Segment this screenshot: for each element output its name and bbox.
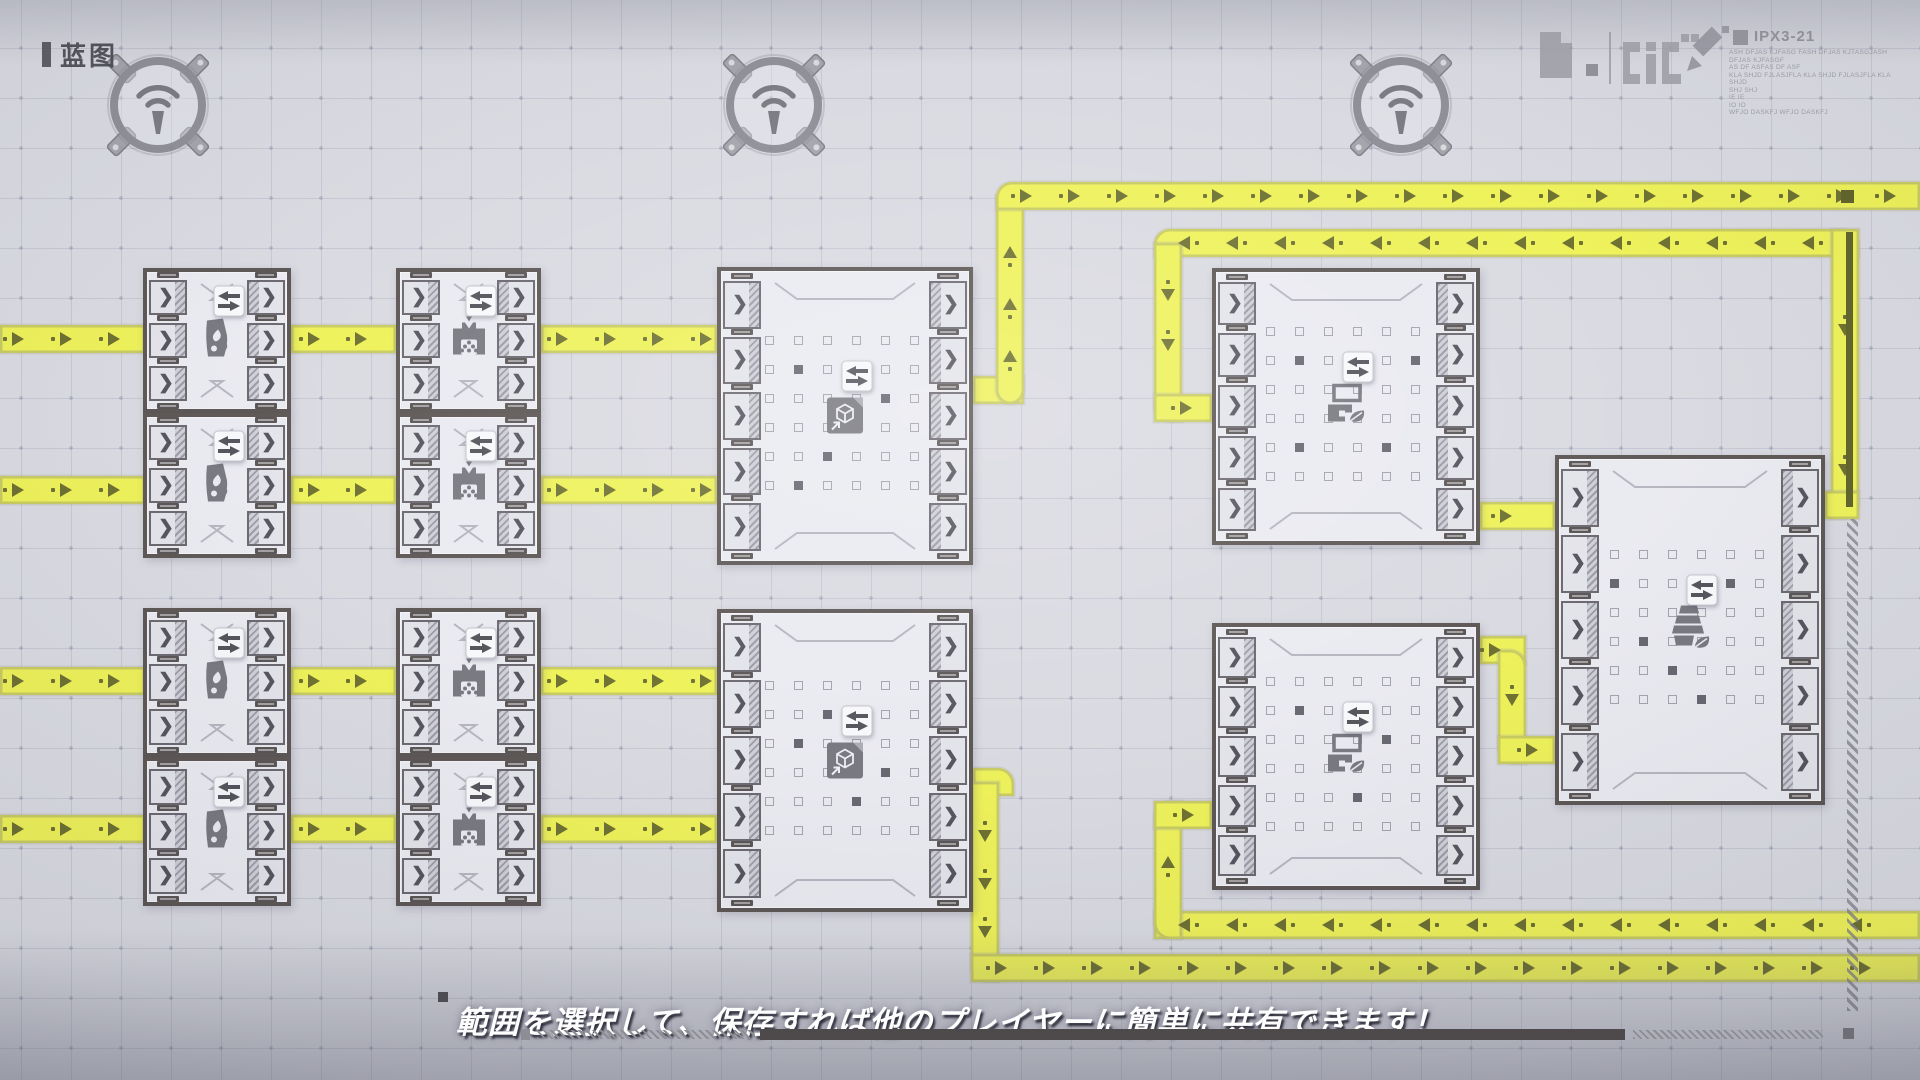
- calibration-dot: [910, 423, 919, 432]
- port-hatch-strip: [931, 625, 941, 670]
- belt-direction-arrow: [652, 822, 664, 836]
- furnace-icon: [194, 657, 240, 708]
- port-label-tag: [505, 850, 527, 856]
- calibration-dot: [1639, 695, 1648, 704]
- calibration-dot: [1266, 356, 1275, 365]
- calibration-dot: [1295, 764, 1304, 773]
- power-tower-icon[interactable]: [83, 30, 233, 180]
- belt-arrow-dot: [1008, 263, 1012, 267]
- io-port[interactable]: ❯: [247, 468, 285, 503]
- conveyor-belt-segment[interactable]: [291, 476, 396, 504]
- belt-arrow-dot: [643, 827, 647, 831]
- io-port[interactable]: ❯: [1561, 733, 1599, 791]
- io-port[interactable]: ❯: [1781, 667, 1819, 725]
- io-port[interactable]: ❯: [929, 793, 967, 842]
- io-port[interactable]: ❯: [1218, 637, 1256, 678]
- belt-arrow-dot: [691, 337, 695, 341]
- port-chevron-icon: ❯: [261, 821, 277, 840]
- sector-info-line: IE IE: [1729, 94, 1909, 102]
- belt-arrow-dot: [3, 679, 7, 683]
- io-port[interactable]: ❯: [723, 623, 761, 672]
- io-port[interactable]: ❯: [149, 468, 187, 503]
- belt-direction-arrow: [652, 674, 664, 688]
- building-leafmachine[interactable]: ❯❯❯❯❯❯❯❯❯❯: [1212, 623, 1480, 890]
- io-port[interactable]: ❯: [929, 503, 967, 551]
- calibration-dot: [1639, 666, 1648, 675]
- belt-direction-arrow: [1562, 918, 1574, 932]
- io-port[interactable]: ❯: [402, 620, 440, 656]
- port-label-tag: [410, 503, 432, 509]
- io-port[interactable]: ❯: [149, 323, 187, 358]
- port-hatch-strip: [175, 368, 185, 399]
- bottom-deco-square: [1843, 1028, 1854, 1039]
- io-port[interactable]: ❯: [1218, 436, 1256, 479]
- calibration-dot: [1411, 706, 1420, 715]
- belt-arrow-dot: [1754, 966, 1758, 970]
- port-hatch-strip: [249, 368, 259, 399]
- port-label-tag: [157, 503, 179, 509]
- port-hatch-strip: [1244, 387, 1254, 426]
- port-label-tag: [255, 612, 277, 618]
- port-hatch-strip: [931, 795, 941, 840]
- sector-info-line: ASH DFJAS KJFASG FASH DFJAS KJTASGJASH D…: [1729, 49, 1909, 64]
- belt-direction-arrow: [604, 674, 616, 688]
- calibration-dot: [910, 394, 919, 403]
- edit-pencil-icon[interactable]: [1678, 24, 1734, 85]
- io-port[interactable]: ❯: [247, 769, 285, 805]
- belt-arrow-dot: [99, 337, 103, 341]
- port-hatch-strip: [1783, 471, 1793, 525]
- port-label-tag: [937, 495, 959, 501]
- sector-info-line: AS DF ASFAS DF ASF: [1729, 64, 1909, 72]
- port-hatch-strip: [249, 666, 259, 698]
- io-port[interactable]: ❯: [723, 392, 761, 440]
- building-furnace[interactable]: ❯❯❯❯❯❯: [143, 268, 291, 413]
- io-port[interactable]: ❯: [247, 511, 285, 546]
- building-furnace[interactable]: ❯❯❯❯❯❯: [143, 757, 291, 906]
- calibration-dot: [823, 481, 832, 490]
- io-port[interactable]: ❯: [497, 620, 535, 656]
- io-port[interactable]: ❯: [247, 280, 285, 315]
- port-label-tag: [1789, 793, 1811, 799]
- port-hatch-strip: [249, 427, 259, 458]
- port-label-tag: [1569, 659, 1591, 665]
- io-port[interactable]: ❯: [497, 858, 535, 894]
- io-port[interactable]: ❯: [1436, 736, 1474, 777]
- belt-arrow-dot: [1203, 194, 1207, 198]
- io-port[interactable]: ❯: [929, 849, 967, 898]
- io-port[interactable]: ❯: [497, 769, 535, 805]
- io-port[interactable]: ❯: [247, 709, 285, 745]
- belt-arrow-dot: [1171, 406, 1175, 410]
- port-label-tag: [1444, 428, 1466, 434]
- port-label-tag: [157, 612, 179, 618]
- port-hatch-strip: [499, 282, 509, 313]
- io-port[interactable]: ❯: [1218, 282, 1256, 325]
- belt-arrow-dot: [1322, 966, 1326, 970]
- belt-direction-arrow: [1571, 961, 1583, 975]
- calibration-dot: [765, 423, 774, 432]
- io-port[interactable]: ❯: [723, 337, 761, 385]
- port-hatch-strip: [1244, 837, 1254, 874]
- io-port[interactable]: ❯: [247, 858, 285, 894]
- belt-arrow-dot: [1008, 367, 1012, 371]
- port-hatch-strip: [428, 513, 438, 544]
- transfer-badge-icon: [1342, 351, 1374, 388]
- belt-direction-arrow: [978, 878, 992, 890]
- sector-info-line: SHJ SHJ: [1729, 87, 1909, 95]
- port-label-tag: [157, 548, 179, 554]
- belt-arrow-dot: [1587, 194, 1591, 198]
- belt-arrow-dot: [1706, 966, 1710, 970]
- port-label-tag: [505, 358, 527, 364]
- io-port[interactable]: ❯: [149, 366, 187, 401]
- io-port[interactable]: ❯: [1561, 667, 1599, 725]
- io-port[interactable]: ❯: [1436, 333, 1474, 376]
- belt-direction-arrow: [355, 822, 367, 836]
- io-port[interactable]: ❯: [1218, 385, 1256, 428]
- calibration-dot: [765, 797, 774, 806]
- calibration-dot: [1324, 327, 1333, 336]
- calibration-dot: [823, 681, 832, 690]
- port-chevron-icon: ❯: [511, 777, 527, 796]
- io-port[interactable]: ❯: [929, 736, 967, 785]
- port-label-tag: [410, 358, 432, 364]
- port-hatch-strip: [249, 470, 259, 501]
- belt-arrow-dot: [1226, 966, 1230, 970]
- belt-arrow-dot: [1339, 923, 1343, 927]
- belt-arrow-dot: [1173, 813, 1177, 817]
- belt-arrow-dot: [595, 488, 599, 492]
- port-label-tag: [937, 672, 959, 678]
- io-port[interactable]: ❯: [1561, 535, 1599, 593]
- io-port[interactable]: ❯: [497, 511, 535, 546]
- calibration-dot: [910, 365, 919, 374]
- io-port[interactable]: ❯: [1781, 733, 1819, 791]
- port-label-tag: [505, 896, 527, 902]
- io-port[interactable]: ❯: [723, 793, 761, 842]
- io-port[interactable]: ❯: [149, 280, 187, 315]
- port-chevron-icon: ❯: [732, 294, 748, 313]
- label-accent-bar: [42, 42, 51, 67]
- io-port[interactable]: ❯: [929, 337, 967, 385]
- calibration-dot: [1726, 666, 1735, 675]
- io-port[interactable]: ❯: [402, 709, 440, 745]
- port-chevron-icon: ❯: [1450, 447, 1466, 466]
- io-port[interactable]: ❯: [402, 425, 440, 460]
- io-port[interactable]: ❯: [929, 623, 967, 672]
- calibration-dot: [1411, 822, 1420, 831]
- io-port[interactable]: ❯: [402, 366, 440, 401]
- io-port[interactable]: ❯: [402, 468, 440, 503]
- port-label-tag: [157, 805, 179, 811]
- calibration-dot: [1639, 637, 1648, 646]
- belt-direction-arrow: [1274, 236, 1286, 250]
- io-port[interactable]: ❯: [402, 813, 440, 849]
- furnace-icon: [194, 315, 240, 366]
- calibration-dot: [1610, 637, 1619, 646]
- building-furnace[interactable]: ❯❯❯❯❯❯: [143, 608, 291, 757]
- io-port[interactable]: ❯: [1436, 385, 1474, 428]
- building-crusher[interactable]: ❯❯❯❯❯❯: [396, 413, 541, 558]
- io-port[interactable]: ❯: [402, 858, 440, 894]
- port-hatch-strip: [749, 682, 759, 727]
- io-port[interactable]: ❯: [1436, 488, 1474, 531]
- belt-direction-arrow: [1356, 189, 1368, 203]
- calibration-dot: [852, 681, 861, 690]
- building-crusher[interactable]: ❯❯❯❯❯❯: [396, 608, 541, 757]
- io-port[interactable]: ❯: [1436, 282, 1474, 325]
- io-port[interactable]: ❯: [1436, 637, 1474, 678]
- building-crusher[interactable]: ❯❯❯❯❯❯: [396, 757, 541, 906]
- power-tower-icon[interactable]: [699, 30, 849, 180]
- io-port[interactable]: ❯: [1561, 601, 1599, 659]
- calibration-dot: [1382, 706, 1391, 715]
- building-farm[interactable]: ❯❯❯❯❯❯❯❯❯❯: [1555, 455, 1825, 805]
- port-hatch-strip: [931, 283, 941, 327]
- belt-arrow-dot: [1675, 241, 1679, 245]
- port-hatch-strip: [428, 622, 438, 654]
- calibration-dot: [1755, 579, 1764, 588]
- port-label-tag: [1444, 274, 1466, 280]
- belt-direction-arrow: [1418, 236, 1430, 250]
- io-port[interactable]: ❯: [929, 448, 967, 496]
- calibration-dot: [794, 452, 803, 461]
- port-hatch-strip: [499, 771, 509, 803]
- belt-arrow-dot: [1723, 923, 1727, 927]
- belt-direction-arrow: [1164, 189, 1176, 203]
- io-port[interactable]: ❯: [1218, 835, 1256, 876]
- calibration-dot: [1295, 822, 1304, 831]
- belt-arrow-dot: [1195, 923, 1199, 927]
- port-label-tag: [937, 329, 959, 335]
- calibration-dot: [910, 768, 919, 777]
- port-chevron-icon: ❯: [1570, 685, 1586, 704]
- calibration-dot: [1668, 666, 1677, 675]
- io-port[interactable]: ❯: [402, 511, 440, 546]
- calibration-dot: [910, 710, 919, 719]
- io-port[interactable]: ❯: [247, 323, 285, 358]
- port-label-tag: [505, 612, 527, 618]
- port-hatch-strip: [428, 282, 438, 313]
- io-port[interactable]: ❯: [1218, 785, 1256, 826]
- io-port[interactable]: ❯: [723, 849, 761, 898]
- calibration-dot: [1353, 472, 1362, 481]
- conveyor-belt-segment[interactable]: [1825, 491, 1859, 519]
- io-port[interactable]: ❯: [1781, 469, 1819, 527]
- calibration-dot: [794, 681, 803, 690]
- belt-arrow-dot: [595, 679, 599, 683]
- port-label-tag: [1569, 593, 1591, 599]
- io-port[interactable]: ❯: [929, 680, 967, 729]
- calibration-dot: [765, 826, 774, 835]
- io-port[interactable]: ❯: [497, 813, 535, 849]
- io-port[interactable]: ❯: [723, 281, 761, 329]
- port-label-tag: [937, 384, 959, 390]
- port-hatch-strip: [175, 282, 185, 313]
- belt-arrow-dot: [691, 827, 695, 831]
- belt-arrow-dot: [1243, 923, 1247, 927]
- conveyor-belt-segment[interactable]: [291, 815, 396, 843]
- calibration-dot: [765, 365, 774, 374]
- port-hatch-strip: [499, 711, 509, 743]
- io-port[interactable]: ❯: [723, 503, 761, 551]
- port-label-tag: [1444, 728, 1466, 734]
- building-furnace[interactable]: ❯❯❯❯❯❯: [143, 413, 291, 558]
- belt-direction-arrow: [308, 483, 320, 497]
- port-chevron-icon: ❯: [1570, 619, 1586, 638]
- io-port[interactable]: ❯: [149, 709, 187, 745]
- port-hatch-strip: [499, 666, 509, 698]
- io-port[interactable]: ❯: [497, 709, 535, 745]
- belt-direction-arrow: [604, 332, 616, 346]
- belt-arrow-dot: [346, 488, 350, 492]
- port-hatch-strip: [1244, 787, 1254, 824]
- io-port[interactable]: ❯: [1781, 601, 1819, 659]
- io-port[interactable]: ❯: [723, 736, 761, 785]
- io-port[interactable]: ❯: [497, 366, 535, 401]
- port-chevron-icon: ❯: [411, 432, 427, 451]
- belt-direction-arrow: [1260, 189, 1272, 203]
- io-port[interactable]: ❯: [149, 813, 187, 849]
- calibration-dot: [910, 797, 919, 806]
- belt-arrow-dot: [1370, 966, 1374, 970]
- port-label-tag: [731, 329, 753, 335]
- io-port[interactable]: ❯: [1436, 785, 1474, 826]
- io-port[interactable]: ❯: [929, 392, 967, 440]
- calibration-dot: [1382, 735, 1391, 744]
- blueprint-canvas[interactable]: ❯❯❯❯❯❯ ❯❯❯❯❯❯ ❯❯❯❯❯❯ ❯❯❯❯❯❯ ❯❯❯❯❯❯ ❯❯❯❯❯…: [0, 0, 1920, 1080]
- port-hatch-strip: [1244, 738, 1254, 775]
- port-chevron-icon: ❯: [1227, 447, 1243, 466]
- io-port[interactable]: ❯: [1218, 488, 1256, 531]
- io-port[interactable]: ❯: [497, 468, 535, 503]
- document-icon[interactable]: [1537, 30, 1575, 85]
- conveyor-belt-segment[interactable]: [291, 667, 396, 695]
- belt-direction-arrow: [1139, 961, 1151, 975]
- belt-arrow-dot: [691, 679, 695, 683]
- io-port[interactable]: ❯: [247, 813, 285, 849]
- port-hatch-strip: [1244, 438, 1254, 477]
- port-chevron-icon: ❯: [732, 517, 748, 536]
- sector-info-line: IO IO: [1729, 102, 1909, 110]
- port-chevron-icon: ❯: [943, 806, 959, 825]
- power-tower-icon[interactable]: [1326, 30, 1476, 180]
- io-port[interactable]: ❯: [497, 323, 535, 358]
- belt-arrow-dot: [1771, 241, 1775, 245]
- io-port[interactable]: ❯: [149, 425, 187, 460]
- io-port[interactable]: ❯: [1436, 835, 1474, 876]
- calibration-dot: [881, 826, 890, 835]
- belt-direction-arrow: [355, 674, 367, 688]
- belt-direction-arrow: [1619, 961, 1631, 975]
- calibration-dot: [1411, 414, 1420, 423]
- io-port[interactable]: ❯: [247, 366, 285, 401]
- io-port[interactable]: ❯: [497, 280, 535, 315]
- belt-direction-arrow: [1003, 298, 1017, 310]
- belt-arrow-dot: [1683, 194, 1687, 198]
- conveyor-belt-segment[interactable]: [971, 954, 1920, 982]
- port-chevron-icon: ❯: [511, 432, 527, 451]
- belt-direction-arrow: [12, 332, 24, 346]
- port-hatch-strip: [1438, 688, 1448, 725]
- io-port[interactable]: ❯: [247, 620, 285, 656]
- port-chevron-icon: ❯: [1227, 845, 1243, 864]
- io-port[interactable]: ❯: [497, 664, 535, 700]
- port-chevron-icon: ❯: [1450, 845, 1466, 864]
- io-port[interactable]: ❯: [149, 769, 187, 805]
- io-port[interactable]: ❯: [1436, 686, 1474, 727]
- belt-direction-arrow: [308, 674, 320, 688]
- belt-direction-arrow: [1161, 339, 1175, 351]
- port-label-tag: [157, 747, 179, 753]
- calibration-dot: [794, 336, 803, 345]
- belt-arrow-dot: [1771, 923, 1775, 927]
- io-port[interactable]: ❯: [497, 425, 535, 460]
- building-storage[interactable]: ❯❯❯❯❯❯❯❯❯❯: [717, 609, 973, 912]
- io-port[interactable]: ❯: [247, 425, 285, 460]
- port-chevron-icon: ❯: [943, 350, 959, 369]
- io-port[interactable]: ❯: [1561, 469, 1599, 527]
- io-port[interactable]: ❯: [402, 323, 440, 358]
- port-label-tag: [1226, 274, 1248, 280]
- io-port[interactable]: ❯: [1218, 333, 1256, 376]
- io-port[interactable]: ❯: [149, 620, 187, 656]
- io-port[interactable]: ❯: [149, 858, 187, 894]
- calibration-dot: [1382, 443, 1391, 452]
- port-chevron-icon: ❯: [1450, 795, 1466, 814]
- belt-direction-arrow: [108, 483, 120, 497]
- io-port[interactable]: ❯: [723, 680, 761, 729]
- calibration-dot: [1266, 822, 1275, 831]
- building-leafmachine[interactable]: ❯❯❯❯❯❯❯❯❯❯: [1212, 268, 1480, 545]
- building-crusher[interactable]: ❯❯❯❯❯❯: [396, 268, 541, 413]
- belt-direction-arrow: [995, 961, 1007, 975]
- io-port[interactable]: ❯: [1218, 736, 1256, 777]
- port-chevron-icon: ❯: [1450, 396, 1466, 415]
- io-port[interactable]: ❯: [402, 280, 440, 315]
- conveyor-belt-segment[interactable]: [291, 325, 396, 353]
- io-port[interactable]: ❯: [1781, 535, 1819, 593]
- calibration-dot: [1295, 472, 1304, 481]
- building-storage[interactable]: ❯❯❯❯❯❯❯❯❯❯: [717, 267, 973, 565]
- io-port[interactable]: ❯: [402, 664, 440, 700]
- io-port[interactable]: ❯: [149, 511, 187, 546]
- belt-arrow-dot: [299, 827, 303, 831]
- calibration-dot: [1697, 666, 1706, 675]
- io-port[interactable]: ❯: [402, 769, 440, 805]
- belt-arrow-dot: [1779, 194, 1783, 198]
- transfer-badge-icon: [841, 360, 873, 397]
- port-label-tag: [410, 747, 432, 753]
- port-label-tag: [1226, 728, 1248, 734]
- io-port[interactable]: ❯: [929, 281, 967, 329]
- io-port[interactable]: ❯: [723, 448, 761, 496]
- calibration-dot: [1266, 677, 1275, 686]
- belt-direction-arrow: [1466, 918, 1478, 932]
- belt-direction-arrow: [60, 483, 72, 497]
- io-port[interactable]: ❯: [247, 664, 285, 700]
- port-label-tag: [937, 841, 959, 847]
- io-port[interactable]: ❯: [1218, 686, 1256, 727]
- io-port[interactable]: ❯: [149, 664, 187, 700]
- port-label-tag: [937, 615, 959, 621]
- io-port[interactable]: ❯: [1436, 436, 1474, 479]
- calibration-dot: [1295, 793, 1304, 802]
- belt-direction-arrow: [1859, 961, 1871, 975]
- port-label-tag: [1569, 793, 1591, 799]
- belt-direction-arrow: [1235, 961, 1247, 975]
